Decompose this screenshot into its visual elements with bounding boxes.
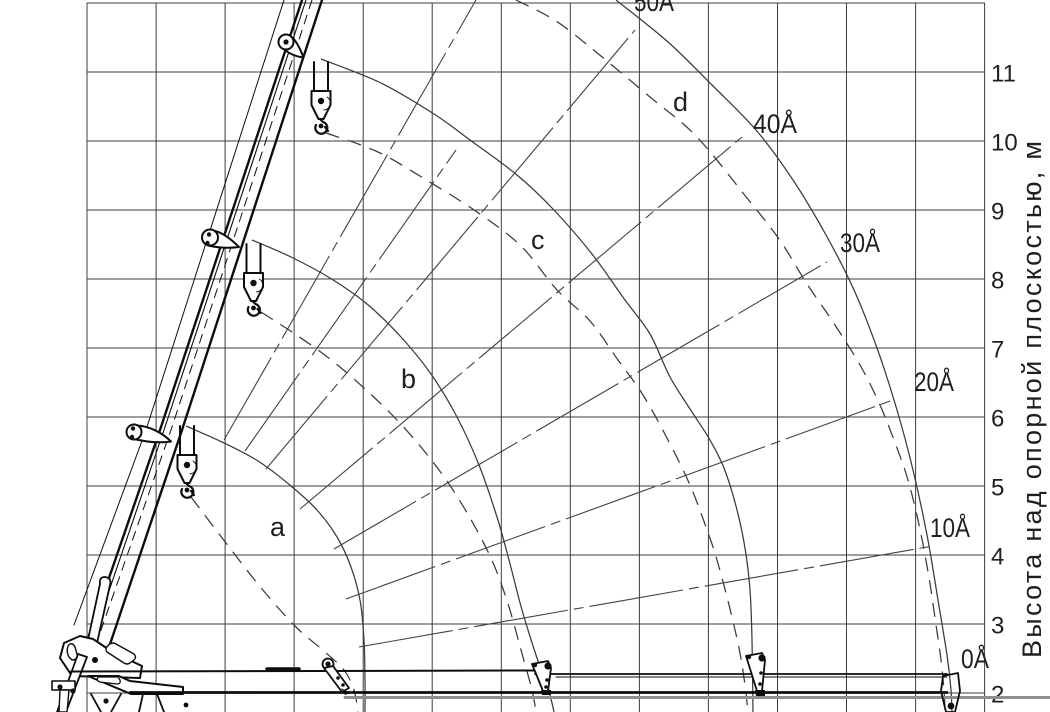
svg-text:2: 2 — [991, 682, 1004, 709]
svg-text:11: 11 — [991, 61, 1016, 88]
svg-text:40Å: 40Å — [753, 108, 797, 139]
svg-text:Высота над опорной плоскостью,: Высота над опорной плоскостью, м — [1017, 141, 1047, 658]
svg-text:c: c — [531, 225, 545, 255]
svg-text:10: 10 — [991, 130, 1018, 157]
svg-text:4: 4 — [991, 544, 1004, 571]
svg-text:50Å: 50Å — [634, 0, 674, 17]
svg-text:20Å: 20Å — [914, 366, 954, 397]
svg-text:b: b — [401, 364, 416, 394]
svg-text:3: 3 — [991, 613, 1004, 640]
svg-text:10Å: 10Å — [930, 512, 970, 543]
svg-text:d: d — [673, 87, 688, 117]
svg-text:a: a — [270, 512, 286, 542]
svg-text:6: 6 — [991, 406, 1004, 433]
svg-text:30Å: 30Å — [840, 227, 880, 258]
svg-text:7: 7 — [991, 337, 1004, 364]
svg-text:5: 5 — [991, 475, 1004, 502]
svg-text:8: 8 — [991, 268, 1004, 295]
svg-text:0Å: 0Å — [961, 643, 989, 674]
svg-text:9: 9 — [991, 199, 1004, 226]
